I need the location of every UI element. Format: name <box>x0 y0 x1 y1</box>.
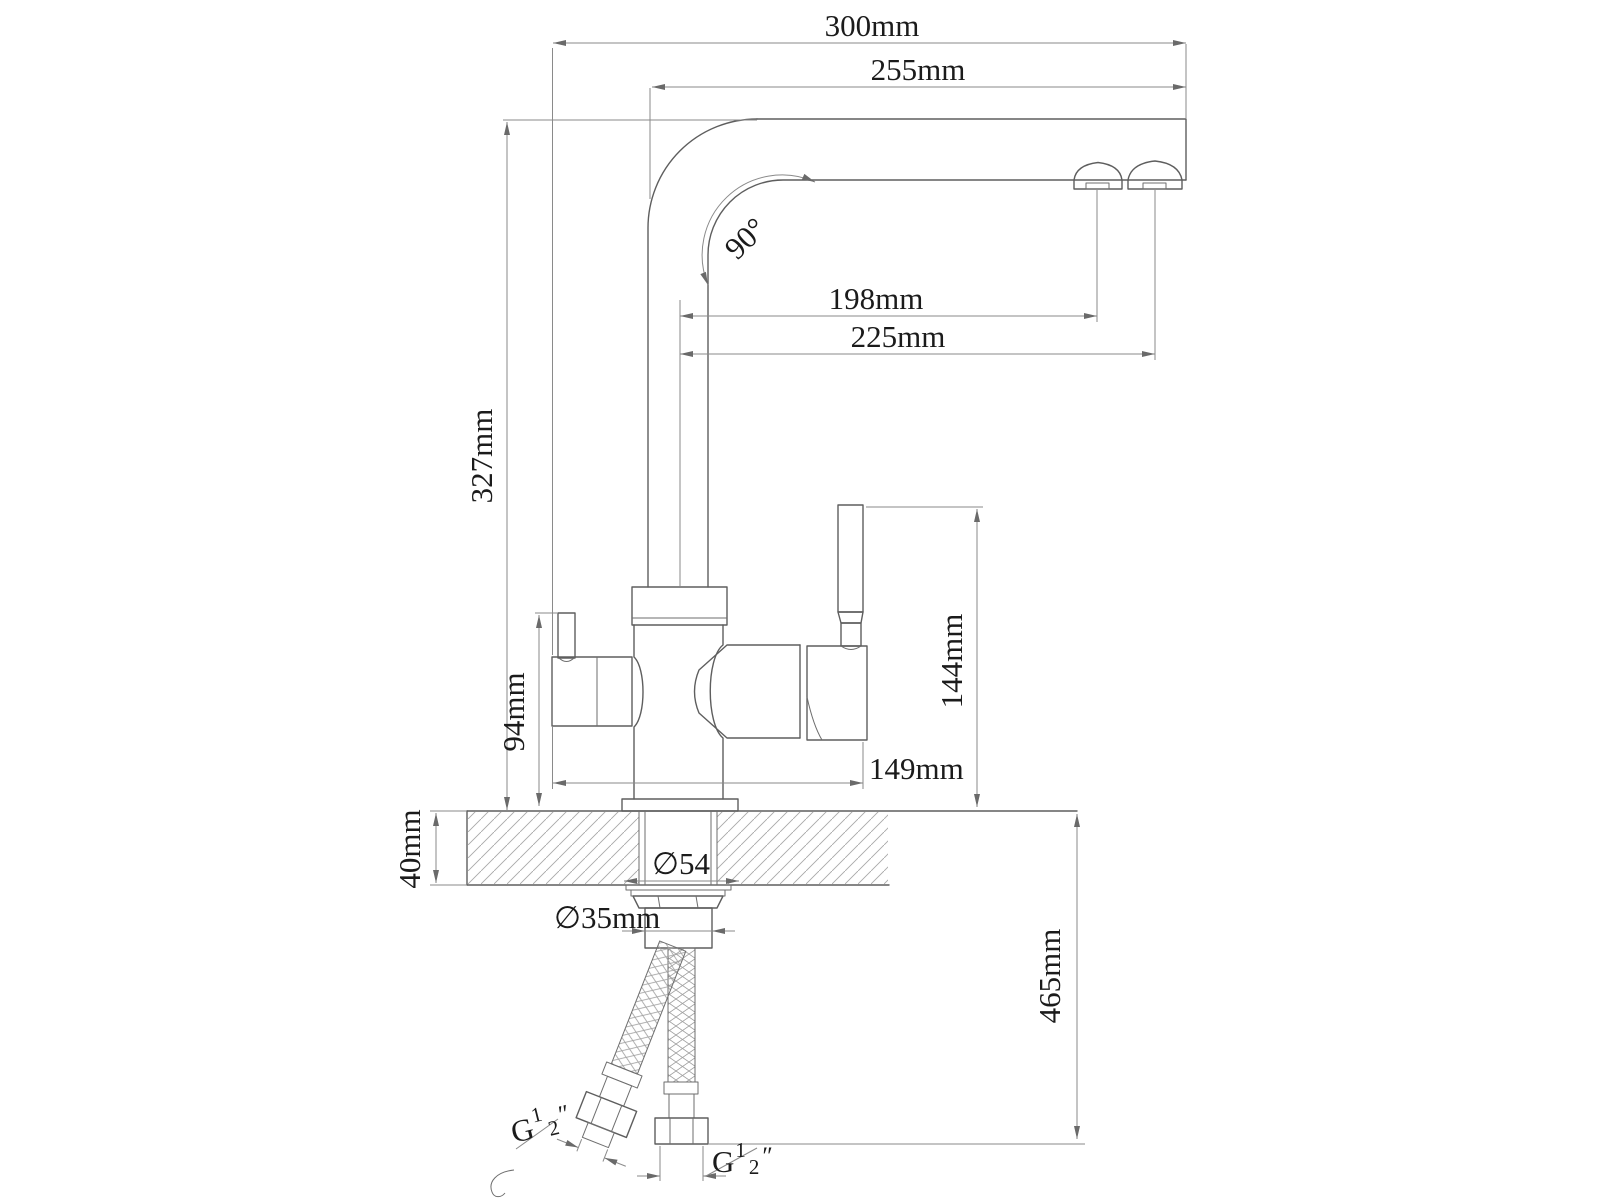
dim-spout-reach-label: 255mm <box>871 52 966 87</box>
extension-lines <box>430 44 1186 1181</box>
faucet-body <box>632 587 727 799</box>
hose-gasket-curl <box>491 1170 514 1197</box>
filter-valve-left <box>552 613 632 726</box>
aerator-main <box>1074 163 1122 190</box>
dim-hose-drop-label: 465mm <box>1032 929 1067 1024</box>
dim-filter-handle-height-label: 94mm <box>496 672 531 751</box>
dim-mixer-handle-height-label: 144mm <box>934 614 969 709</box>
dim-escutcheon-diameter-label: ∅54 <box>652 846 711 881</box>
dim-angle-label: 90° <box>717 211 773 266</box>
mixer-handle-lever <box>838 505 863 650</box>
dimension-lines <box>436 43 1186 1176</box>
dim-height-label: 327mm <box>464 409 499 504</box>
aerator-filtered <box>1128 161 1182 189</box>
dim-aerator-tip-offset-label: 225mm <box>851 319 946 354</box>
mounting-escutcheon <box>622 799 738 811</box>
dim-countertop-thickness-label: 40mm <box>392 809 427 888</box>
dim-aerator-main-offset-label: 198mm <box>829 281 924 316</box>
countertop-section <box>467 811 1077 885</box>
dim-overall-width-label: 300mm <box>825 8 920 43</box>
thread-size-right-label: G12″ <box>712 1138 773 1179</box>
dim-shank-diameter-label: ∅35mm <box>554 900 660 935</box>
mixer-cartridge-right <box>695 645 868 740</box>
dim-body-span-label: 149mm <box>869 751 964 786</box>
technical-drawing-canvas: 300mm 255mm 90° 198mm 225mm 327mm 94mm 1… <box>0 0 1600 1200</box>
